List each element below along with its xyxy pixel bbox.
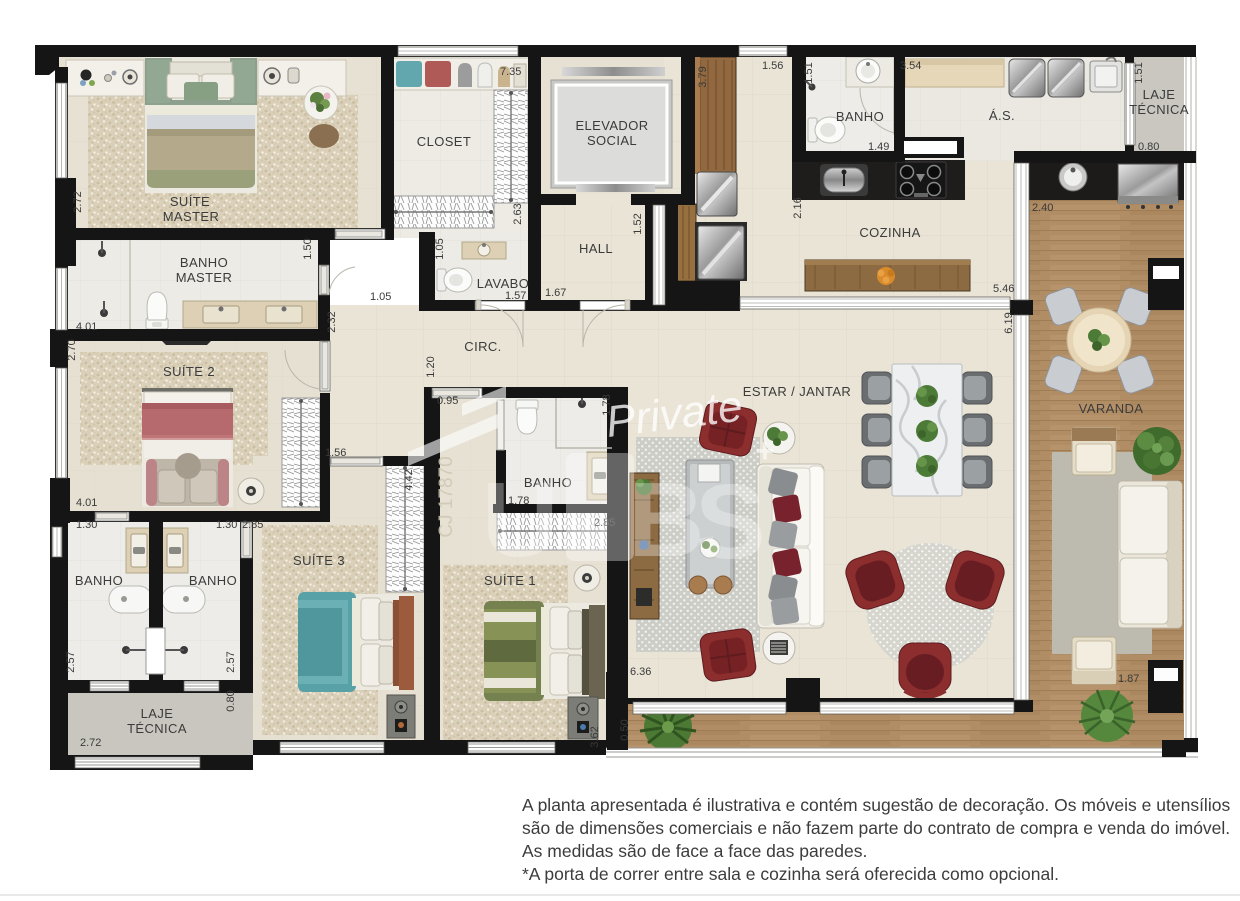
svg-text:1.52: 1.52 — [632, 213, 644, 234]
svg-text:são de dimensões comerciais e: são de dimensões comerciais e não fazem … — [522, 818, 1230, 838]
svg-text:SUÍTE: SUÍTE — [170, 194, 210, 209]
svg-text:MASTER: MASTER — [163, 209, 220, 224]
svg-text:6.36: 6.36 — [630, 666, 651, 678]
svg-text:3.62: 3.62 — [589, 726, 601, 747]
svg-text:LAJE: LAJE — [141, 706, 174, 721]
svg-text:1.20: 1.20 — [425, 356, 437, 377]
svg-text:TÉCNICA: TÉCNICA — [127, 721, 187, 736]
svg-text:BANHO: BANHO — [189, 573, 237, 588]
svg-text:COZINHA: COZINHA — [859, 225, 920, 240]
svg-text:U: U — [482, 461, 559, 579]
svg-text:1.05: 1.05 — [434, 238, 446, 259]
svg-text:2.57: 2.57 — [65, 651, 77, 672]
svg-text:BANHO: BANHO — [836, 109, 884, 124]
svg-text:2.70: 2.70 — [66, 339, 78, 360]
svg-text:BANHO: BANHO — [75, 573, 123, 588]
svg-text:CLOSET: CLOSET — [417, 134, 471, 149]
svg-text:1.51: 1.51 — [803, 62, 815, 83]
svg-text:6.19: 6.19 — [1003, 312, 1015, 333]
svg-text:MASTER: MASTER — [176, 270, 233, 285]
svg-text:2.63: 2.63 — [512, 203, 524, 224]
svg-text:1.56: 1.56 — [325, 447, 346, 459]
svg-text:1.30: 1.30 — [76, 519, 97, 531]
svg-text:1.49: 1.49 — [868, 141, 889, 153]
svg-text:*A porta de correr entre sala: *A porta de correr entre sala e cozinha … — [522, 864, 1059, 884]
svg-text:TÉCNICA: TÉCNICA — [1129, 102, 1189, 117]
svg-text:LAJE: LAJE — [1143, 87, 1176, 102]
svg-text:B: B — [628, 461, 705, 579]
svg-text:ESTAR / JANTAR: ESTAR / JANTAR — [743, 384, 851, 399]
svg-text:1.50: 1.50 — [302, 238, 314, 259]
svg-text:0.50: 0.50 — [619, 719, 631, 740]
svg-text:4.01: 4.01 — [76, 321, 97, 333]
svg-text:A planta apresentada é ilustra: A planta apresentada é ilustrativa e con… — [522, 795, 1230, 815]
svg-text:1.56: 1.56 — [762, 60, 783, 72]
svg-text:1.57: 1.57 — [505, 290, 526, 302]
svg-text:2.72: 2.72 — [80, 737, 101, 749]
svg-text:4.01: 4.01 — [76, 497, 97, 509]
svg-text:SUÍTE 3: SUÍTE 3 — [293, 553, 345, 568]
svg-text:S: S — [695, 463, 766, 581]
svg-text:1.87: 1.87 — [1118, 673, 1139, 685]
svg-text:SUÍTE 2: SUÍTE 2 — [163, 364, 215, 379]
svg-text:LAVABO: LAVABO — [477, 276, 530, 291]
svg-text:2.85: 2.85 — [242, 519, 263, 531]
svg-text:0.80: 0.80 — [1138, 141, 1159, 153]
svg-text:5.46: 5.46 — [993, 283, 1014, 295]
svg-text:1.05: 1.05 — [370, 291, 391, 303]
svg-text:4.42: 4.42 — [403, 469, 415, 490]
svg-text:2.16: 2.16 — [792, 197, 804, 218]
svg-text:3.54: 3.54 — [900, 60, 921, 72]
svg-text:2.32: 2.32 — [326, 311, 338, 332]
svg-text:ELEVADOR: ELEVADOR — [575, 118, 648, 133]
svg-text:2.57: 2.57 — [225, 651, 237, 672]
svg-text:0.80: 0.80 — [225, 690, 237, 711]
svg-text:CIRC.: CIRC. — [464, 339, 501, 354]
svg-text:1.51: 1.51 — [1133, 62, 1145, 83]
svg-text:1.67: 1.67 — [545, 287, 566, 299]
svg-text:7.35: 7.35 — [500, 66, 521, 78]
svg-text:3.79: 3.79 — [697, 66, 709, 87]
svg-text:2.72: 2.72 — [72, 191, 84, 212]
svg-text:VARANDA: VARANDA — [1079, 401, 1144, 416]
svg-text:1.30: 1.30 — [216, 519, 237, 531]
svg-text:0.95: 0.95 — [437, 395, 458, 407]
svg-text:BANHO: BANHO — [180, 255, 228, 270]
svg-text:Á.S.: Á.S. — [989, 108, 1015, 123]
svg-text:HALL: HALL — [579, 241, 613, 256]
svg-text:+: + — [755, 432, 775, 470]
svg-text:CJ 17870: CJ 17870 — [436, 456, 457, 537]
svg-text:SOCIAL: SOCIAL — [587, 133, 637, 148]
svg-text:As medidas são de face a face: As medidas são de face a face das parede… — [522, 841, 867, 861]
svg-text:2.40: 2.40 — [1032, 202, 1053, 214]
